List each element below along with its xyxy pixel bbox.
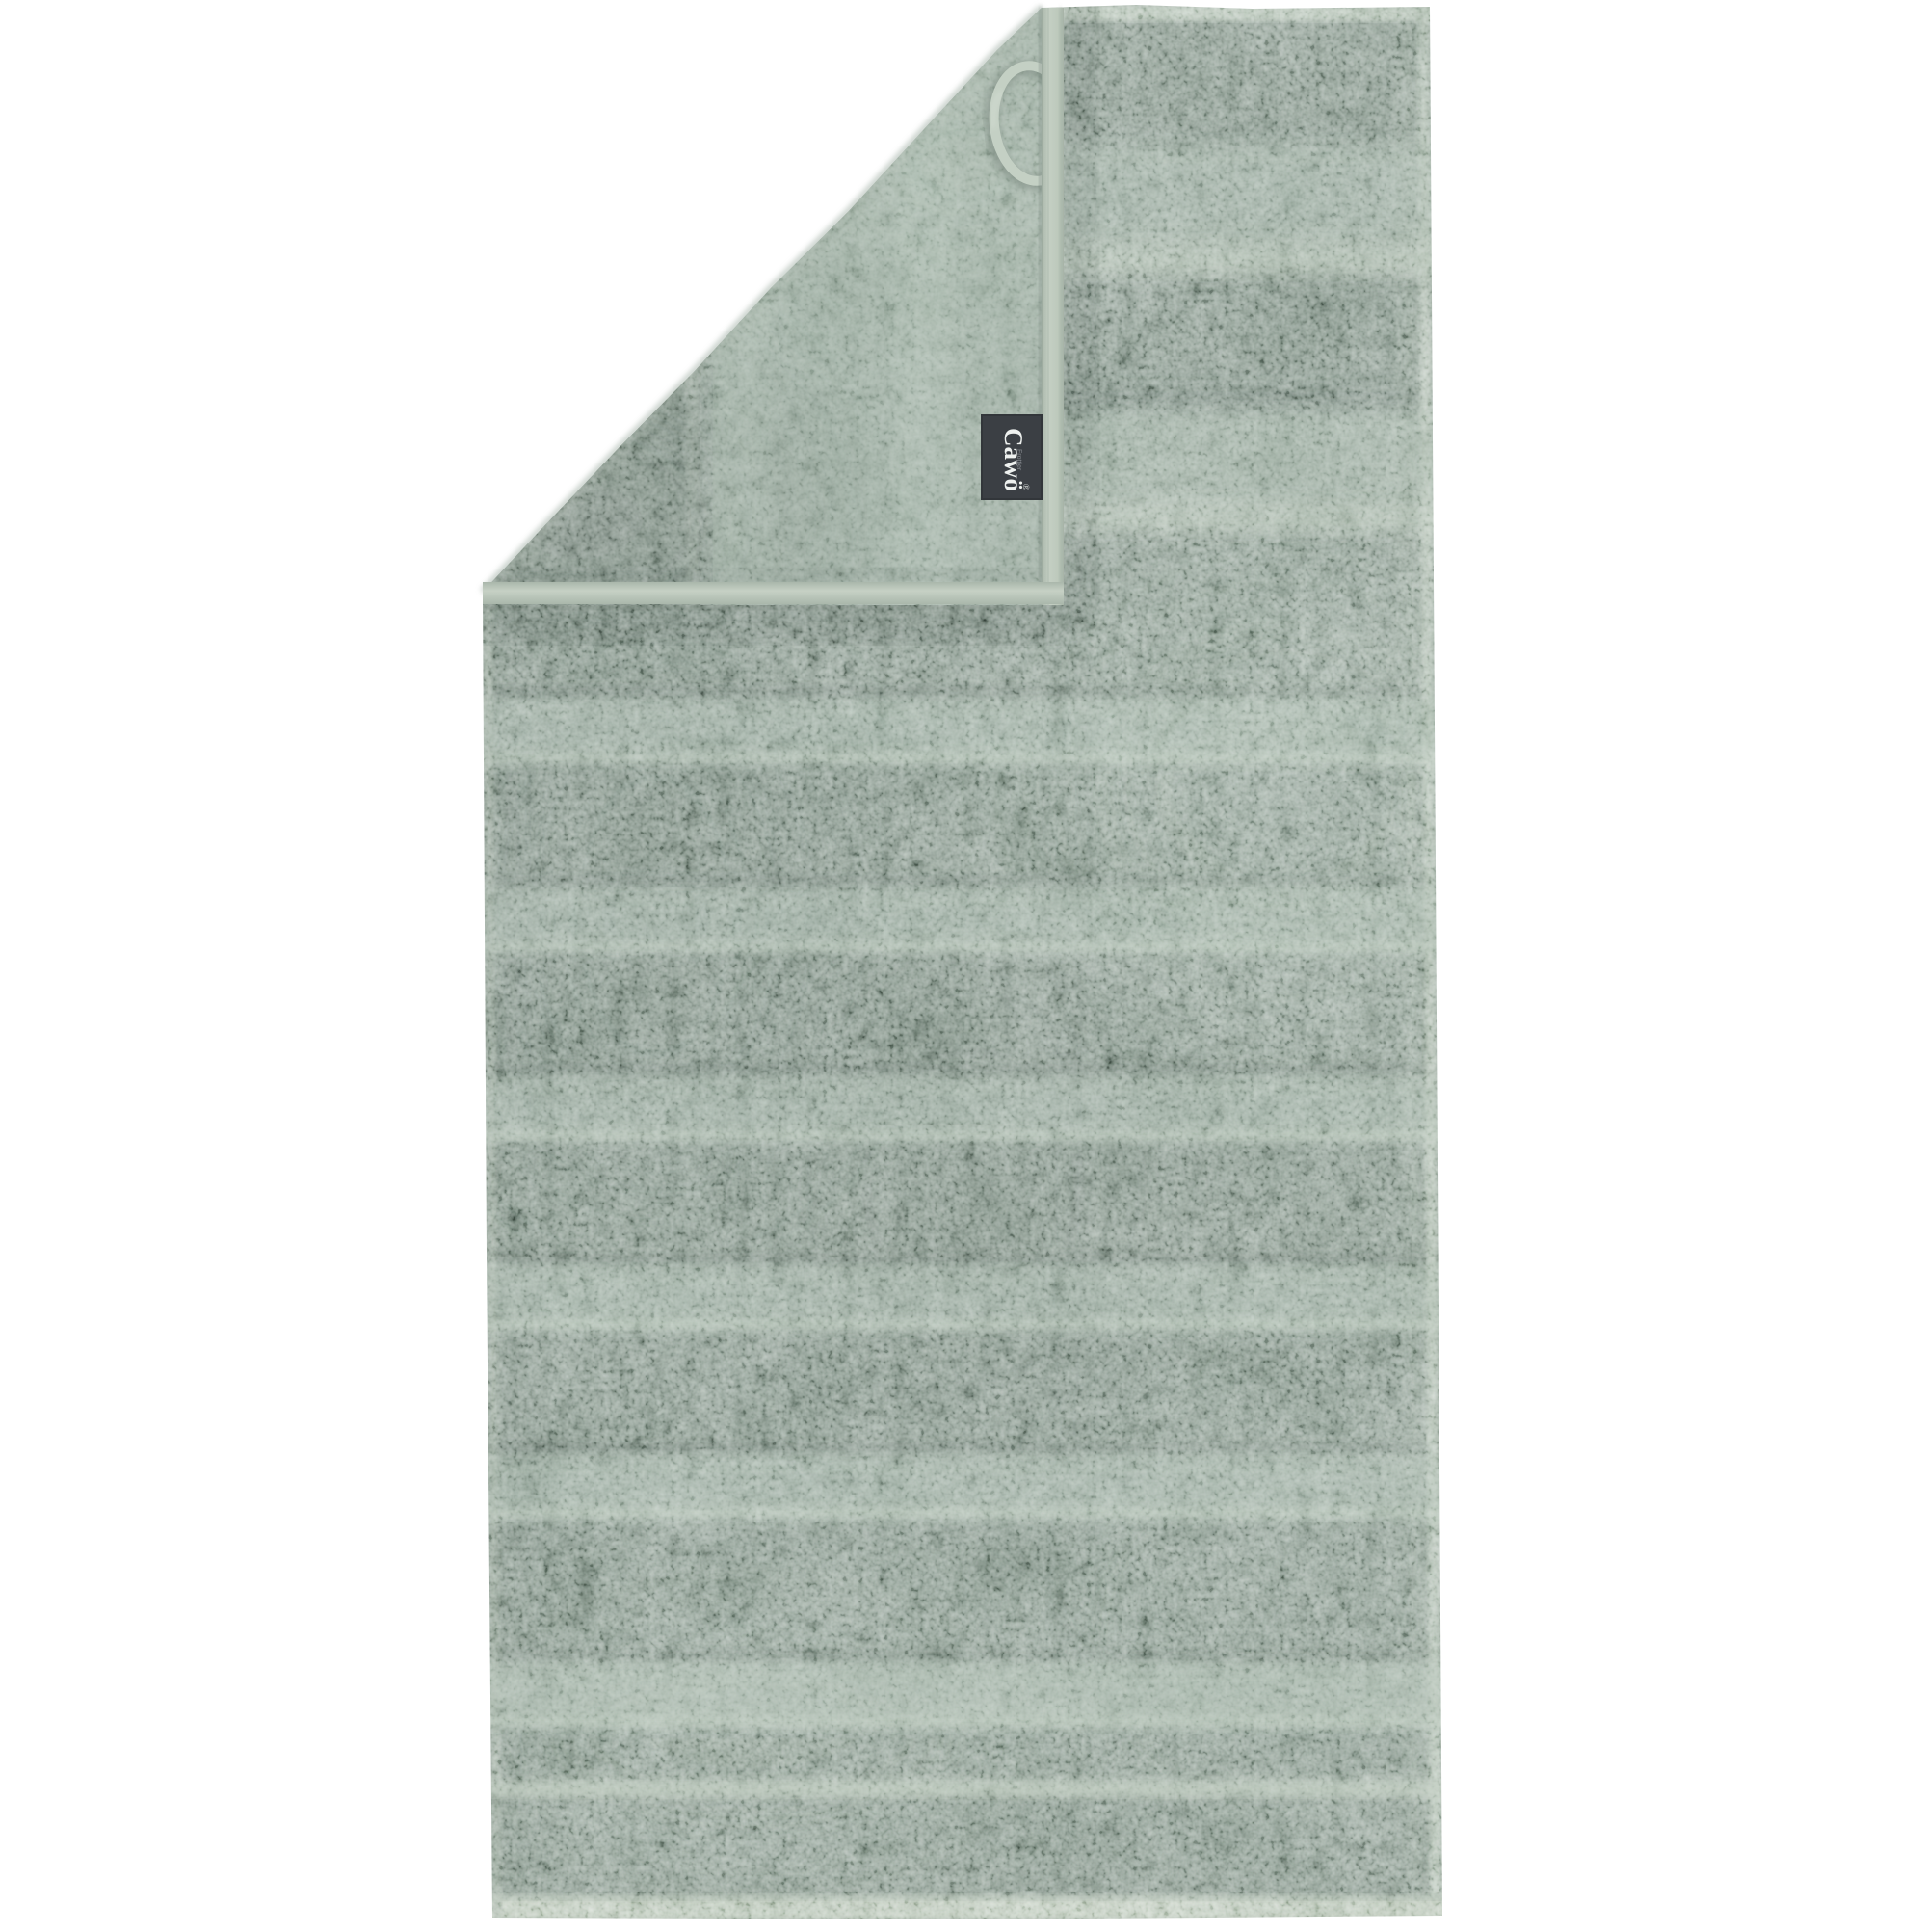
svg-text:®: ®	[1021, 484, 1031, 490]
svg-text:Frottier: Frottier	[1016, 449, 1023, 471]
svg-text:Cawö: Cawö	[999, 428, 1028, 491]
